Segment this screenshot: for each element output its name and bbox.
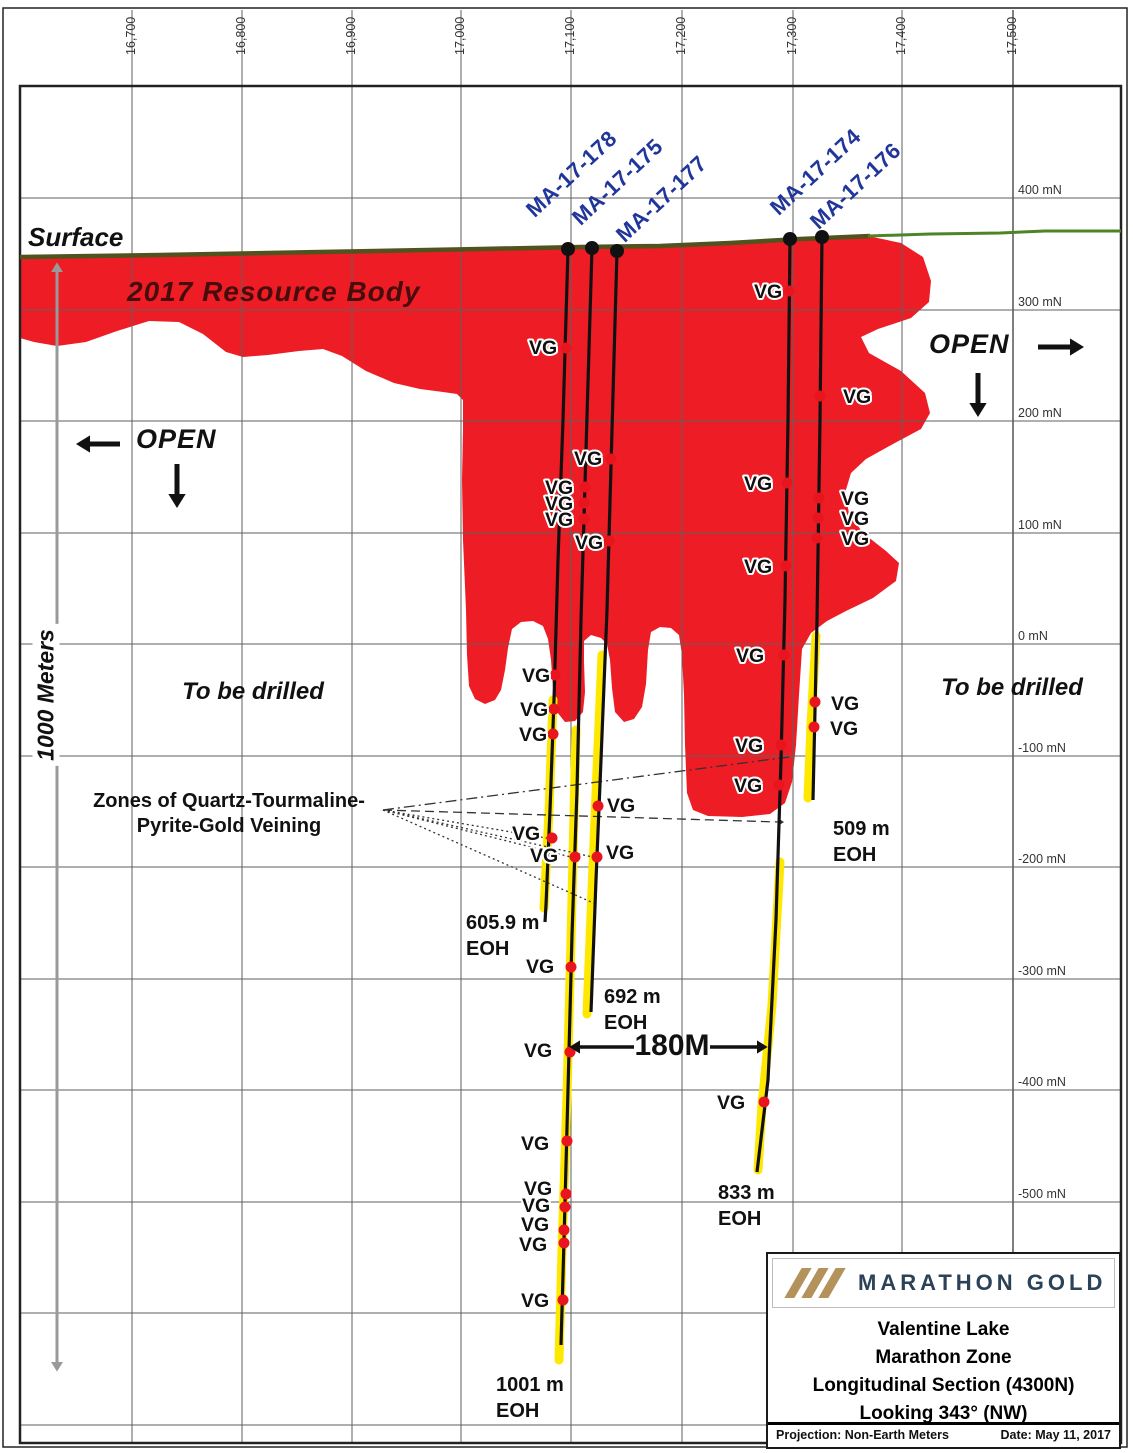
- zones-line1: Zones of Quartz-Tourmaline-: [68, 789, 390, 814]
- vg-dot: [548, 729, 559, 740]
- vg-label: VG: [522, 665, 550, 687]
- open-right-down-arrow-head: [969, 403, 986, 417]
- vg-label: VG: [744, 556, 772, 578]
- vg-label: VG: [717, 1092, 745, 1114]
- easting-tick-label: 17,200: [674, 17, 688, 55]
- open-right-arrow-head: [1070, 338, 1084, 355]
- vg-dot: [776, 740, 787, 751]
- easting-tick-label: 17,000: [453, 17, 467, 55]
- vg-dot: [559, 1225, 570, 1236]
- vg-label: VG: [574, 448, 602, 470]
- surface-label: Surface: [28, 222, 123, 253]
- northing-tick-label: 200 mN: [1018, 406, 1062, 420]
- vg-label: VG: [545, 509, 573, 531]
- resource-body-label: 2017 Resource Body: [127, 276, 420, 308]
- open-left-arrow-head: [76, 435, 90, 452]
- vg-dot: [570, 852, 581, 863]
- projection-note: Projection: Non-Earth Meters: [776, 1428, 949, 1442]
- section-plot: VGVGVGVGVGVGVGVGVGVGVGVGVGVGVGVGVGVGVGVG…: [0, 0, 1133, 1453]
- open-left-down-arrow-head: [168, 494, 185, 508]
- vg-dot: [809, 722, 820, 733]
- marathon-gold-logo: MARATHON GOLD: [772, 1258, 1115, 1308]
- collar-MA-17-177: [610, 244, 624, 258]
- vg-dot: [593, 801, 604, 812]
- vg-dot: [774, 780, 785, 791]
- eoh-label-ma-17-177: 692 m EOH: [604, 984, 661, 1036]
- vg-dot: [579, 514, 590, 525]
- vg-label: VG: [519, 724, 547, 746]
- eoh-suffix: EOH: [604, 1010, 661, 1036]
- vg-label: VG: [734, 775, 762, 797]
- brand-wordmark: MARATHON GOLD: [858, 1270, 1106, 1296]
- northing-tick-label: -300 mN: [1018, 964, 1066, 978]
- northing-tick-label: -100 mN: [1018, 741, 1066, 755]
- title-block-footer: Projection: Non-Earth Meters Date: May 1…: [768, 1422, 1119, 1447]
- eoh-depth: 692 m: [604, 984, 661, 1010]
- eoh-depth: 1001 m: [496, 1372, 564, 1398]
- vg-dot: [559, 1238, 570, 1249]
- vg-dot: [566, 962, 577, 973]
- zones-of-veining-label: Zones of Quartz-Tourmaline- Pyrite-Gold …: [68, 789, 390, 839]
- scale-arrow-head: [51, 1362, 63, 1372]
- vg-label: VG: [843, 386, 871, 408]
- vg-label: VG: [520, 699, 548, 721]
- vg-label: VG: [529, 337, 557, 359]
- vg-dot: [579, 498, 590, 509]
- eoh-label-ma-17-176: 509 m EOH: [833, 816, 890, 868]
- eoh-depth: 605.9 m: [466, 910, 539, 936]
- vg-label: VG: [736, 645, 764, 667]
- eoh-depth: 833 m: [718, 1180, 775, 1206]
- eoh-suffix: EOH: [718, 1206, 775, 1232]
- collar-MA-17-174: [783, 232, 797, 246]
- easting-tick-label: 17,400: [894, 17, 908, 55]
- vg-dot: [812, 533, 823, 544]
- vg-dot: [561, 1189, 572, 1200]
- vg-label: VG: [524, 1040, 552, 1062]
- northing-tick-label: -500 mN: [1018, 1187, 1066, 1201]
- resource-body-2017: [20, 236, 931, 817]
- vg-dot: [606, 454, 617, 465]
- vg-label: VG: [521, 1214, 549, 1236]
- scale-1000m-label: 1000 Meters: [33, 624, 60, 766]
- date-note: Date: May 11, 2017: [1001, 1428, 1112, 1442]
- vg-dot: [779, 650, 790, 661]
- to-be-drilled-right-label: To be drilled: [902, 674, 1122, 702]
- northing-tick-label: 300 mN: [1018, 295, 1062, 309]
- veining-zone-leader: [383, 810, 597, 858]
- vg-label: VG: [744, 473, 772, 495]
- vg-dot: [580, 482, 591, 493]
- vg-dot: [558, 1295, 569, 1306]
- easting-tick-label: 16,900: [344, 17, 358, 55]
- eoh-label-ma-17-174: 833 m EOH: [718, 1180, 775, 1232]
- vg-dot: [549, 704, 560, 715]
- northing-tick-label: 100 mN: [1018, 518, 1062, 532]
- vg-label: VG: [575, 532, 603, 554]
- eoh-depth: 509 m: [833, 816, 890, 842]
- easting-tick-label: 16,700: [124, 17, 138, 55]
- vg-label: VG: [530, 845, 558, 867]
- vg-dot: [562, 1136, 573, 1147]
- to-be-drilled-left-label: To be drilled: [143, 678, 363, 706]
- vg-label: VG: [754, 281, 782, 303]
- title-line-1: Valentine Lake: [768, 1316, 1119, 1344]
- northing-tick-label: 400 mN: [1018, 183, 1062, 197]
- eoh-suffix: EOH: [466, 936, 539, 962]
- surface-line-green: [868, 231, 1121, 236]
- northing-tick-label: 0 mN: [1018, 629, 1048, 643]
- vg-label: VG: [831, 693, 859, 715]
- collar-MA-17-178: [561, 242, 575, 256]
- eoh-label-ma-17-178: 605.9 m EOH: [466, 910, 539, 962]
- vg-label: VG: [607, 795, 635, 817]
- northing-tick-label: -400 mN: [1018, 1075, 1066, 1089]
- vg-label: VG: [841, 488, 869, 510]
- easting-tick-label: 17,100: [563, 17, 577, 55]
- vg-label: VG: [521, 1133, 549, 1155]
- eoh-label-ma-17-175: 1001 m EOH: [496, 1372, 564, 1424]
- open-left-label: OPEN: [136, 424, 217, 455]
- easting-tick-label: 17,500: [1005, 17, 1019, 55]
- vg-label: VG: [841, 508, 869, 530]
- open-right-label: OPEN: [929, 329, 1010, 360]
- vg-dot: [560, 1202, 571, 1213]
- vg-dot: [759, 1097, 770, 1108]
- vg-dot: [781, 561, 792, 572]
- vg-dot: [782, 478, 793, 489]
- vg-dot: [592, 852, 603, 863]
- vg-dot: [604, 536, 615, 547]
- vg-dot: [561, 343, 572, 354]
- collar-MA-17-175: [585, 241, 599, 255]
- vg-label: VG: [519, 1234, 547, 1256]
- eoh-suffix: EOH: [833, 842, 890, 868]
- title-block-titles: Valentine Lake Marathon Zone Longitudina…: [768, 1312, 1119, 1428]
- title-line-3: Longitudinal Section (4300N): [768, 1372, 1119, 1400]
- title-block: MARATHON GOLD Valentine Lake Marathon Zo…: [766, 1252, 1121, 1449]
- vg-label: VG: [841, 528, 869, 550]
- vg-dot: [815, 391, 826, 402]
- vg-dot: [550, 670, 561, 681]
- veining-zone-leader: [383, 810, 598, 905]
- title-line-2: Marathon Zone: [768, 1344, 1119, 1372]
- vg-dot: [810, 697, 821, 708]
- vg-label: VG: [512, 823, 540, 845]
- zones-line2: Pyrite-Gold Veining: [68, 814, 390, 839]
- northing-tick-label: -200 mN: [1018, 852, 1066, 866]
- easting-tick-label: 17,300: [785, 17, 799, 55]
- longitudinal-section-figure: VGVGVGVGVGVGVGVGVGVGVGVGVGVGVGVGVGVGVGVG…: [0, 0, 1133, 1453]
- vg-dot: [813, 513, 824, 524]
- vg-dot: [784, 286, 795, 297]
- vg-label: VG: [735, 735, 763, 757]
- vg-dot: [814, 493, 825, 504]
- vg-label: VG: [521, 1290, 549, 1312]
- vg-label: VG: [606, 842, 634, 864]
- vg-label: VG: [830, 718, 858, 740]
- vg-dot: [547, 833, 558, 844]
- eoh-suffix: EOH: [496, 1398, 564, 1424]
- easting-tick-label: 16,800: [234, 17, 248, 55]
